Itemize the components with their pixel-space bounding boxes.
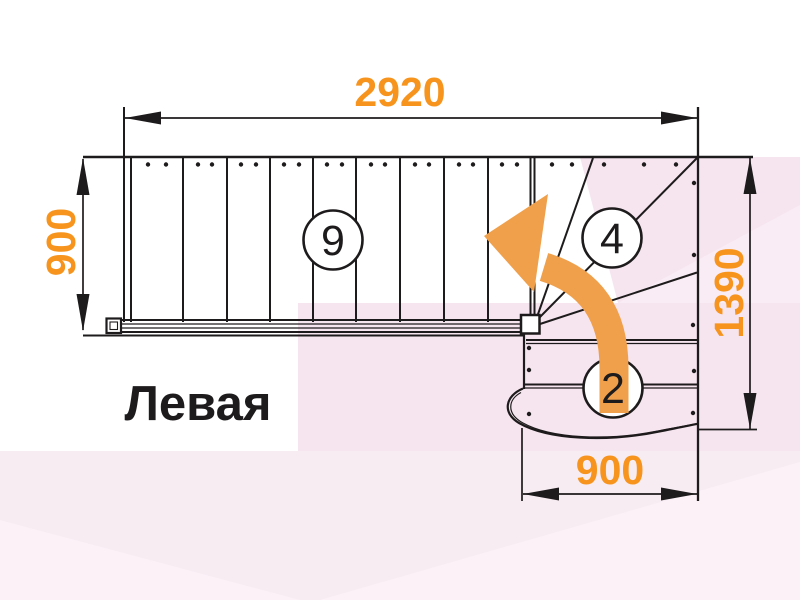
dimension-top-label: 2920 xyxy=(354,69,445,115)
dimension-bottom-label: 900 xyxy=(576,447,644,493)
left-newel-post xyxy=(107,319,122,334)
stair-plan-page: 2920 900 1390 900 9 4 2 Левая xyxy=(0,0,800,600)
dimension-left-label: 900 xyxy=(38,208,84,276)
centre-newel-post xyxy=(521,315,540,334)
lower-flight-count: 2 xyxy=(601,365,625,413)
plan-title: Левая xyxy=(125,377,272,431)
upper-flight-count: 9 xyxy=(321,217,345,265)
stair-plan-drawing: 2920 900 1390 900 9 4 2 Левая xyxy=(0,0,800,600)
dimension-right-label: 1390 xyxy=(706,247,752,338)
winder-count: 4 xyxy=(600,215,624,263)
